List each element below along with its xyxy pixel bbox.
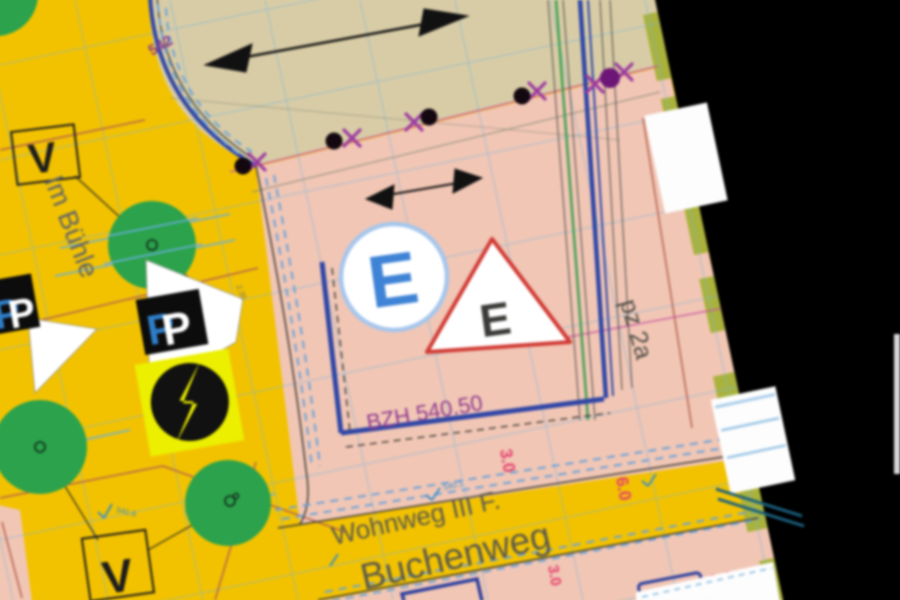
transformer-symbol — [135, 349, 245, 457]
dimension-label: 6.0 — [612, 475, 635, 502]
map-viewport: P P P P V V — [0, 0, 900, 600]
map-canvas: P P P P V V — [0, 0, 900, 600]
tree — [185, 460, 271, 546]
dimension-label: 3.0 — [496, 447, 519, 474]
dimension-label: 3.0 — [544, 564, 564, 587]
edge-sliver — [894, 334, 900, 474]
e-circle-symbol: E — [341, 224, 447, 330]
